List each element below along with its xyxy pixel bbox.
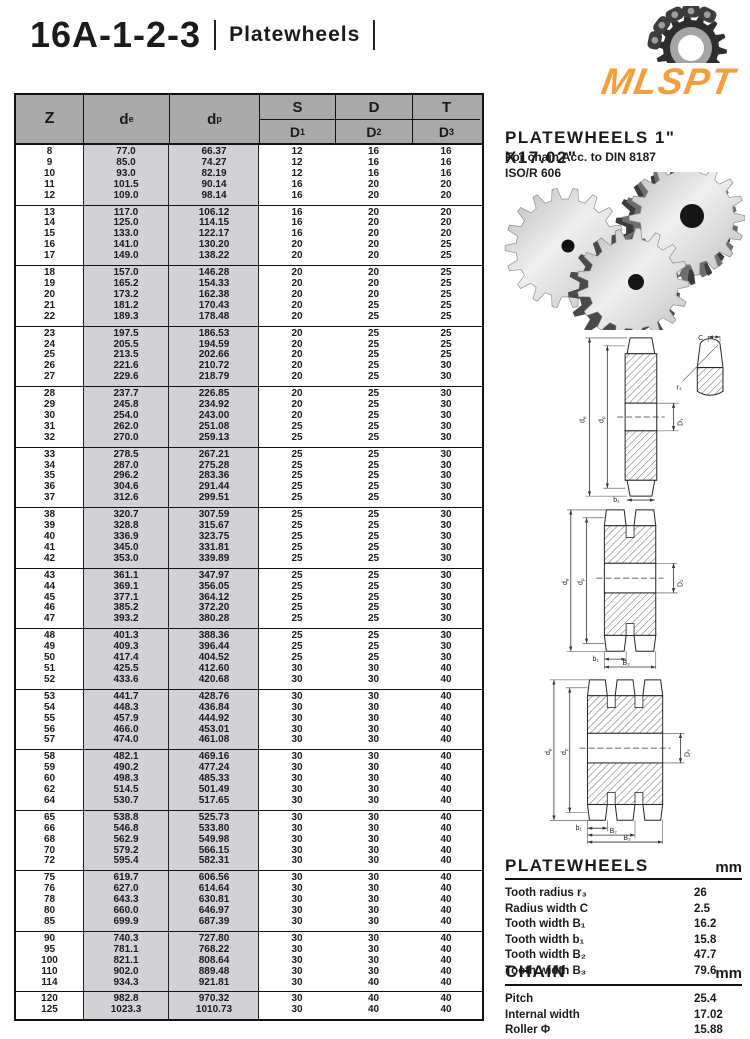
chain-spec-title: CHAIN xyxy=(505,962,566,982)
table-row: 36304.6291.44252530 xyxy=(16,482,482,493)
table-cell: 40 xyxy=(412,978,480,989)
table-cell: 25 xyxy=(335,433,412,444)
table-cell: 339.89 xyxy=(169,554,259,565)
table-row: 114934.3921.81304040 xyxy=(16,978,482,989)
table-cell: 40 xyxy=(335,1005,412,1016)
svg-text:D₁: D₁ xyxy=(677,418,684,426)
table-cell: 55 xyxy=(16,714,83,725)
diagram-triple-platewheel: de dp D₃ b₁ B₂ B₃ xyxy=(518,672,748,846)
table-cell: 25 xyxy=(259,582,335,593)
table-cell: 393.2 xyxy=(83,614,169,625)
svg-text:B₂: B₂ xyxy=(610,828,618,835)
table-cell: 44 xyxy=(16,582,83,593)
table-cell: 52 xyxy=(16,675,83,686)
spec-row: Internal width17.02 xyxy=(505,1008,742,1024)
table-cell: 299.51 xyxy=(169,493,259,504)
table-cell: 30 xyxy=(412,450,480,461)
table-cell: 30 xyxy=(259,835,335,846)
table-group: 38320.7307.5925253039328.8315.6725253040… xyxy=(16,507,482,568)
spec-value: 15.88 xyxy=(694,1023,742,1039)
table-cell: 109.0 xyxy=(83,191,169,202)
table-cell: 23 xyxy=(16,329,83,340)
table-cell: 420.68 xyxy=(169,675,259,686)
table-cell: 17 xyxy=(16,251,83,262)
table-cell: 40 xyxy=(412,675,480,686)
table-cell: 595.4 xyxy=(83,856,169,867)
table-cell: 178.48 xyxy=(169,312,259,323)
table-cell: 25 xyxy=(259,493,335,504)
table-cell: 20 xyxy=(259,329,335,340)
table-cell: 921.81 xyxy=(169,978,259,989)
table-cell: 11 xyxy=(16,180,83,191)
table-group: 48401.3388.3625253049409.3396.4425253050… xyxy=(16,628,482,689)
table-cell: 30 xyxy=(259,978,335,989)
table-row: 54448.3436.84303040 xyxy=(16,703,482,714)
table-cell: 448.3 xyxy=(83,703,169,714)
table-cell: 361.1 xyxy=(83,571,169,582)
table-cell: 30 xyxy=(412,433,480,444)
table-cell: 30 xyxy=(335,675,412,686)
table-cell: 90.14 xyxy=(169,180,259,191)
platewheels-spec: PLATEWHEELS mm Tooth radius r₃26Radius w… xyxy=(505,856,742,979)
table-cell: 433.6 xyxy=(83,675,169,686)
table-cell: 934.3 xyxy=(83,978,169,989)
table-cell: 30 xyxy=(259,1005,335,1016)
table-row: 72595.4582.31303040 xyxy=(16,856,482,867)
table-row: 45377.1364.12252530 xyxy=(16,593,482,604)
table-cell: 20 xyxy=(335,251,412,262)
table-row: 43361.1347.97252530 xyxy=(16,571,482,582)
svg-text:D₂: D₂ xyxy=(677,579,684,587)
col-header-t: T xyxy=(412,95,480,119)
table-row: 21181.2170.43202525 xyxy=(16,301,482,312)
table-group: 43361.1347.9725253044369.1356.0525253045… xyxy=(16,568,482,629)
table-cell: 25 xyxy=(259,614,335,625)
table-cell: 821.1 xyxy=(83,956,169,967)
table-cell: 25 xyxy=(335,582,412,593)
table-cell: 25 xyxy=(259,450,335,461)
svg-text:D₃: D₃ xyxy=(684,749,691,757)
table-cell: 40 xyxy=(412,714,480,725)
table-cell: 149.0 xyxy=(83,251,169,262)
table-cell: 40 xyxy=(412,856,480,867)
spec-row: Tooth width B₁16.2 xyxy=(505,917,742,933)
table-cell: 1023.3 xyxy=(83,1005,169,1016)
table-group: 23197.5186.5320252524205.5194.5920252525… xyxy=(16,326,482,387)
table-cell: 461.08 xyxy=(169,735,259,746)
spec-value: 15.8 xyxy=(694,933,742,949)
table-group: 65538.8525.7330304066546.8533.8030304068… xyxy=(16,810,482,871)
spec-value: 16.2 xyxy=(694,917,742,933)
table-row: 68562.9549.98303040 xyxy=(16,835,482,846)
table-cell: 270.0 xyxy=(83,433,169,444)
table-group: 13117.0106.1216202014125.0114.1516202015… xyxy=(16,205,482,266)
table-row: 877.066.37121616 xyxy=(16,147,482,158)
platewheels-spec-title: PLATEWHEELS xyxy=(505,856,649,876)
table-row: 55457.9444.92303040 xyxy=(16,714,482,725)
table-cell: 20 xyxy=(335,191,412,202)
page-title: 16A-1-2-3 xyxy=(30,14,201,56)
table-cell: 27 xyxy=(16,372,83,383)
table-row: 22189.3178.48202525 xyxy=(16,312,482,323)
spec-row: Roller Φ15.88 xyxy=(505,1023,742,1039)
chain-spec: CHAIN mm Pitch25.4Internal width17.02Rol… xyxy=(505,962,742,1039)
table-row: 66546.8533.80303040 xyxy=(16,824,482,835)
table-cell: 197.5 xyxy=(83,329,169,340)
table-header: Z de dp S D T D1 D2 D3 xyxy=(16,95,482,145)
table-cell: 114 xyxy=(16,978,83,989)
table-cell: 30 xyxy=(335,735,412,746)
spec-value: 2.5 xyxy=(694,902,742,918)
table-row: 70579.2566.15303040 xyxy=(16,846,482,857)
svg-text:b₁: b₁ xyxy=(613,497,620,504)
sprocket-bore xyxy=(562,240,575,253)
table-row: 110902.0889.48303040 xyxy=(16,967,482,978)
svg-text:dp: dp xyxy=(598,416,606,423)
table-cell: 30 xyxy=(412,493,480,504)
table-cell: 30 xyxy=(259,856,335,867)
table-cell: 125 xyxy=(16,1005,83,1016)
col-header-de: de xyxy=(83,95,169,143)
table-group: 18157.0146.2820202519165.2154.3320202520… xyxy=(16,265,482,326)
spec-label: Pitch xyxy=(505,992,694,1008)
table-cell: 54 xyxy=(16,703,83,714)
table-row: 1251023.31010.73304040 xyxy=(16,1005,482,1016)
table-group: 120982.8970.323040401251023.31010.733040… xyxy=(16,991,482,1019)
single-section-drawing: de dp D₁ b₁ C r₃ xyxy=(580,335,723,504)
table-row: 27229.6218.79202530 xyxy=(16,372,482,383)
spec-label: Tooth radius r₃ xyxy=(505,886,694,902)
table-cell: 457.9 xyxy=(83,714,169,725)
table-group: 58482.1469.1630304059490.2477.2430304060… xyxy=(16,749,482,810)
table-cell: 30 xyxy=(335,967,412,978)
table-cell: 100 xyxy=(16,956,83,967)
table-row: 49409.3396.44252530 xyxy=(16,642,482,653)
table-cell: 40 xyxy=(412,967,480,978)
table-cell: 25 xyxy=(335,372,412,383)
table-row: 28237.7226.85202530 xyxy=(16,389,482,400)
table-row: 44369.1356.05252530 xyxy=(16,582,482,593)
table-cell: 474.0 xyxy=(83,735,169,746)
table-cell: 30 xyxy=(335,917,412,928)
col-header-d2: D2 xyxy=(335,119,412,143)
table-row: 78643.3630.81303040 xyxy=(16,895,482,906)
table-cell: 20 xyxy=(259,312,335,323)
table-cell: 30 xyxy=(335,956,412,967)
table-cell: 40 xyxy=(412,835,480,846)
table-row: 17149.0138.22202025 xyxy=(16,251,482,262)
table-cell: 1010.73 xyxy=(169,1005,259,1016)
spec-label: Tooth width B₁ xyxy=(505,917,694,933)
logo-text: MLSPT xyxy=(599,60,741,100)
table-cell: 30 xyxy=(412,554,480,565)
table-cell: 85 xyxy=(16,917,83,928)
table-row: 1093.082.19121616 xyxy=(16,169,482,180)
table-cell: 32 xyxy=(16,433,83,444)
table-row: 34287.0275.28252530 xyxy=(16,461,482,472)
table-row: 18157.0146.28202025 xyxy=(16,268,482,279)
table-row: 30254.0243.00202530 xyxy=(16,411,482,422)
table-cell: 517.65 xyxy=(169,796,259,807)
table-cell: 582.31 xyxy=(169,856,259,867)
svg-text:de: de xyxy=(545,748,553,755)
table-cell: 267.21 xyxy=(169,450,259,461)
table-cell: 687.39 xyxy=(169,917,259,928)
table-cell: 40 xyxy=(412,735,480,746)
table-cell: 549.98 xyxy=(169,835,259,846)
table-row: 100821.1808.64303040 xyxy=(16,956,482,967)
table-cell: 30 xyxy=(412,582,480,593)
table-row: 64530.7517.65303040 xyxy=(16,796,482,807)
table-cell: 72 xyxy=(16,856,83,867)
table-cell: 444.92 xyxy=(169,714,259,725)
table-cell: 353.0 xyxy=(83,554,169,565)
table-cell: 30 xyxy=(412,571,480,582)
table-cell: 40 xyxy=(412,917,480,928)
table-group: 90740.3727.8030304095781.1768.2230304010… xyxy=(16,931,482,992)
table-row: 39328.8315.67252530 xyxy=(16,521,482,532)
table-cell: 30 xyxy=(259,675,335,686)
table-cell: 25 xyxy=(335,614,412,625)
table-cell: 20 xyxy=(412,191,480,202)
table-cell: 20 xyxy=(412,180,480,191)
title-divider xyxy=(214,20,216,50)
table-row: 31262.0251.08252530 xyxy=(16,422,482,433)
product-standard-line1: For chain Acc. to DIN 8187 xyxy=(505,150,656,164)
table-row: 25213.5202.66202525 xyxy=(16,350,482,361)
table-cell: 16 xyxy=(259,191,335,202)
table-cell: 138.22 xyxy=(169,251,259,262)
table-row: 26221.6210.72202530 xyxy=(16,361,482,372)
table-cell: 25 xyxy=(412,312,480,323)
table-group: 53441.7428.7630304054448.3436.8430304055… xyxy=(16,689,482,750)
table-group: 28237.7226.8520253029245.8234.9220253030… xyxy=(16,386,482,447)
table-cell: 530.7 xyxy=(83,796,169,807)
table-row: 50417.4404.52252530 xyxy=(16,653,482,664)
table-row: 24205.5194.59202525 xyxy=(16,340,482,351)
table-row: 76627.0614.64303040 xyxy=(16,884,482,895)
table-row: 47393.2380.28252530 xyxy=(16,614,482,625)
double-section-drawing: de dp D₂ b₁ B₂ xyxy=(562,510,685,669)
table-row: 32270.0259.13252530 xyxy=(16,433,482,444)
table-row: 11101.590.14162020 xyxy=(16,180,482,191)
table-row: 42353.0339.89252530 xyxy=(16,554,482,565)
col-header-z: Z xyxy=(16,95,83,143)
svg-text:B₂: B₂ xyxy=(622,660,630,667)
table-cell: 20 xyxy=(259,251,335,262)
table-cell: 218.79 xyxy=(169,372,259,383)
page-header: 16A-1-2-3 Platewheels xyxy=(30,14,388,56)
table-cell: 436.84 xyxy=(169,703,259,714)
table-cell: 25 xyxy=(335,554,412,565)
col-header-d3: D3 xyxy=(412,119,480,143)
sprocket-bore xyxy=(628,274,644,290)
sprocket-photos xyxy=(497,172,745,330)
table-row: 16141.0130.20202025 xyxy=(16,240,482,251)
table-cell: 25 xyxy=(259,554,335,565)
table-cell: 30 xyxy=(259,956,335,967)
table-row: 60498.3485.33303040 xyxy=(16,774,482,785)
sprocket-bore xyxy=(678,35,704,61)
table-cell: 25 xyxy=(335,450,412,461)
table-cell: 347.97 xyxy=(169,571,259,582)
spec-label: Tooth width b₁ xyxy=(505,933,694,949)
table-row: 53441.7428.76303040 xyxy=(16,692,482,703)
table-cell: 57 xyxy=(16,735,83,746)
spec-label: Roller Φ xyxy=(505,1023,694,1039)
table-row: 59490.2477.24303040 xyxy=(16,763,482,774)
table-cell: 278.5 xyxy=(83,450,169,461)
spec-row: Radius width C2.5 xyxy=(505,902,742,918)
table-row: 56466.0453.01303040 xyxy=(16,725,482,736)
table-cell: 42 xyxy=(16,554,83,565)
table-cell: 40 xyxy=(335,978,412,989)
spec-value: 26 xyxy=(694,886,742,902)
table-cell: 380.28 xyxy=(169,614,259,625)
table-cell: 312.6 xyxy=(83,493,169,504)
table-cell: 229.6 xyxy=(83,372,169,383)
table-cell: 369.1 xyxy=(83,582,169,593)
logo-chain-link xyxy=(682,6,700,18)
table-cell: 98.14 xyxy=(169,191,259,202)
brand-logo: MLSPT xyxy=(596,6,744,100)
table-cell: 356.05 xyxy=(169,582,259,593)
spec-value: 25.4 xyxy=(694,992,742,1008)
table-row: 20173.2162.38202025 xyxy=(16,290,482,301)
spec-label: Internal width xyxy=(505,1008,694,1024)
table-row: 95781.1768.22303040 xyxy=(16,945,482,956)
table-cell: 68 xyxy=(16,835,83,846)
table-row: 46385.2372.20252530 xyxy=(16,603,482,614)
table-row: 75619.7606.56303040 xyxy=(16,873,482,884)
table-cell: 30 xyxy=(412,614,480,625)
table-row: 120982.8970.32304040 xyxy=(16,994,482,1005)
svg-text:b₁: b₁ xyxy=(593,656,600,663)
table-cell: 30 xyxy=(259,917,335,928)
table-row: 65538.8525.73303040 xyxy=(16,813,482,824)
table-cell: 22 xyxy=(16,312,83,323)
diagram-single-platewheel: de dp D₁ b₁ C r₃ xyxy=(532,332,740,504)
table-cell: 30 xyxy=(259,967,335,978)
table-cell: 30 xyxy=(412,372,480,383)
table-row: 14125.0114.15162020 xyxy=(16,218,482,229)
table-row: 41345.0331.81252530 xyxy=(16,543,482,554)
table-row: 12109.098.14162020 xyxy=(16,191,482,202)
table-cell: 30 xyxy=(335,796,412,807)
table-cell: 33 xyxy=(16,450,83,461)
diagram-double-platewheel: de dp D₂ b₁ B₂ xyxy=(527,504,745,670)
table-cell: 30 xyxy=(259,703,335,714)
table-cell: 40 xyxy=(412,1005,480,1016)
table-cell: 37 xyxy=(16,493,83,504)
table-cell: 25 xyxy=(412,329,480,340)
table-cell: 12 xyxy=(16,191,83,202)
col-header-d1: D1 xyxy=(259,119,335,143)
svg-text:C: C xyxy=(698,335,703,342)
page-subtitle: Platewheels xyxy=(229,23,360,47)
col-header-s: S xyxy=(259,95,335,119)
table-cell: 40 xyxy=(412,956,480,967)
svg-text:B₃: B₃ xyxy=(623,835,631,842)
table-cell: 30 xyxy=(335,835,412,846)
spec-label: Radius width C xyxy=(505,902,694,918)
table-row: 38320.7307.59252530 xyxy=(16,510,482,521)
spec-row: Tooth width b₁15.8 xyxy=(505,933,742,949)
table-row: 51425.5412.60303040 xyxy=(16,664,482,675)
table-cell: 20 xyxy=(335,180,412,191)
table-cell: 30 xyxy=(335,703,412,714)
table-row: 29245.8234.92202530 xyxy=(16,400,482,411)
table-cell: 101.5 xyxy=(83,180,169,191)
table-row: 35296.2283.36252530 xyxy=(16,471,482,482)
table-row: 13117.0106.12162020 xyxy=(16,208,482,219)
table-cell: 30 xyxy=(335,856,412,867)
table-cell: 40 xyxy=(412,796,480,807)
col-header-dp: dp xyxy=(169,95,259,143)
table-cell: 189.3 xyxy=(83,312,169,323)
svg-text:b₁: b₁ xyxy=(576,825,583,832)
dimension-table: Z de dp S D T D1 D2 D3 877.066.371216169… xyxy=(14,93,484,1021)
table-cell: 40 xyxy=(412,703,480,714)
table-row: 57474.0461.08303040 xyxy=(16,735,482,746)
table-cell: 64 xyxy=(16,796,83,807)
table-cell: 110 xyxy=(16,967,83,978)
chain-spec-rows: Pitch25.4Internal width17.02Roller Φ15.8… xyxy=(505,992,742,1039)
svg-text:de: de xyxy=(562,578,570,585)
table-cell: 20 xyxy=(259,372,335,383)
svg-text:dp: dp xyxy=(561,748,569,755)
sprocket-image-group xyxy=(505,172,745,330)
table-cell: 43 xyxy=(16,571,83,582)
table-cell: 186.53 xyxy=(169,329,259,340)
chain-spec-header: CHAIN mm xyxy=(505,962,742,986)
table-row: 985.074.27121616 xyxy=(16,158,482,169)
table-cell: 902.0 xyxy=(83,967,169,978)
svg-text:de: de xyxy=(580,416,588,423)
platewheels-spec-unit: mm xyxy=(715,859,742,876)
table-cell: 30 xyxy=(259,735,335,746)
table-cell: 808.64 xyxy=(169,956,259,967)
table-row: 90740.3727.80303040 xyxy=(16,934,482,945)
svg-text:r₃: r₃ xyxy=(677,384,682,391)
chain-spec-unit: mm xyxy=(715,965,742,982)
title-divider-2 xyxy=(373,20,375,50)
table-cell: 25 xyxy=(335,329,412,340)
table-cell: 25 xyxy=(335,493,412,504)
table-cell: 30 xyxy=(259,714,335,725)
table-cell: 699.9 xyxy=(83,917,169,928)
table-row: 62514.5501.49303040 xyxy=(16,785,482,796)
table-cell: 25 xyxy=(335,571,412,582)
table-row: 40336.9323.75252530 xyxy=(16,532,482,543)
table-cell: 889.48 xyxy=(169,967,259,978)
table-row: 80660.0646.97303040 xyxy=(16,906,482,917)
platewheels-spec-header: PLATEWHEELS mm xyxy=(505,856,742,880)
table-row: 85699.9687.39303040 xyxy=(16,917,482,928)
table-cell: 25 xyxy=(412,251,480,262)
table-cell: 25 xyxy=(259,571,335,582)
table-row: 19165.2154.33202025 xyxy=(16,279,482,290)
table-cell: 30 xyxy=(335,714,412,725)
main-table-body: 877.066.37121616985.074.271216161093.082… xyxy=(16,145,482,1019)
table-cell: 16 xyxy=(259,180,335,191)
table-row: 23197.5186.53202525 xyxy=(16,329,482,340)
col-header-d: D xyxy=(335,95,412,119)
table-row: 48401.3388.36252530 xyxy=(16,631,482,642)
svg-text:dp: dp xyxy=(578,578,586,585)
table-cell: 25 xyxy=(259,433,335,444)
table-row: 58482.1469.16303040 xyxy=(16,752,482,763)
